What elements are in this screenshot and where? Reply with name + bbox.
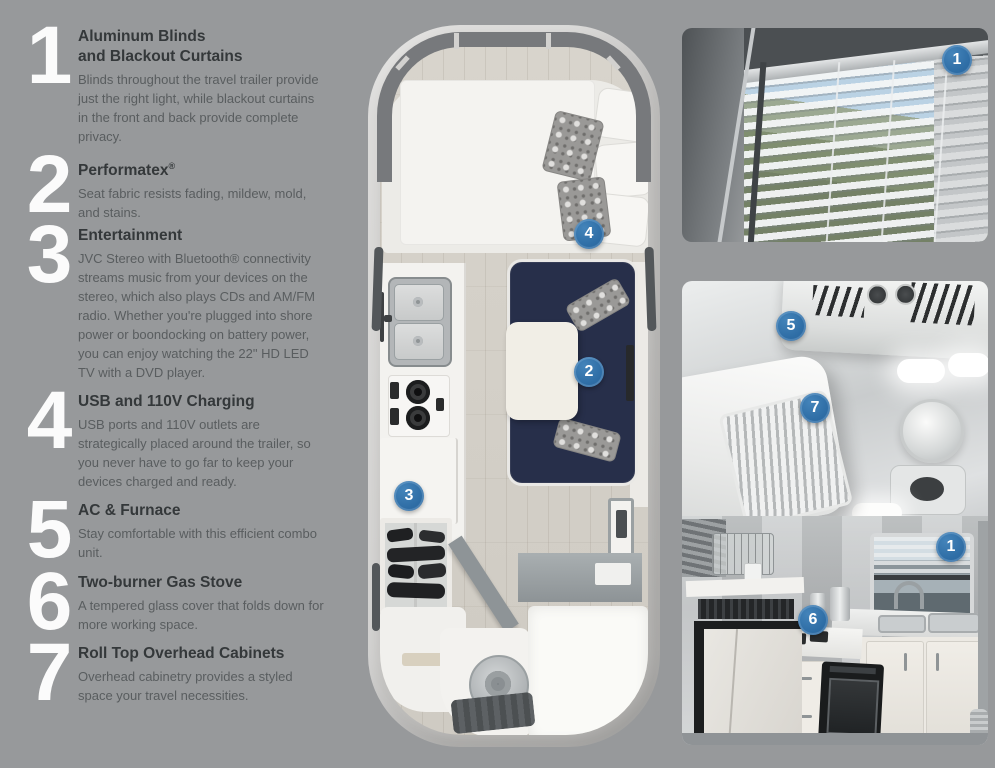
feature-description: Stay comfortable with this efficient com…	[78, 524, 326, 562]
feature-item-6: 6 Two-burner Gas Stove A tempered glass …	[20, 573, 324, 634]
feature-title: Entertainment	[78, 226, 324, 246]
feature-number: 3	[20, 222, 76, 288]
bath-counter-inset	[595, 563, 631, 585]
rolltop-cabinet	[682, 353, 851, 542]
entry-door-window	[616, 510, 627, 538]
brochure-page: 1 Aluminum Blinds and Blackout Curtains …	[0, 0, 995, 768]
stove-knob	[436, 398, 444, 411]
cabinet-handle	[904, 653, 907, 671]
ac-vent-knob	[866, 284, 888, 306]
speaker-cone	[910, 477, 944, 501]
burner-cap	[414, 414, 422, 422]
stove-grate	[390, 382, 399, 399]
callout-badge-window: 1	[936, 532, 966, 562]
feature-description: Seat fabric resists fading, mildew, mold…	[78, 184, 326, 222]
feature-description: Blinds throughout the travel trailer pro…	[78, 70, 326, 146]
feature-item-7: 7 Roll Top Overhead Cabinets Overhead ca…	[20, 644, 324, 705]
window-pane-gap	[454, 33, 459, 49]
feature-title: Roll Top Overhead Cabinets	[78, 644, 324, 664]
feature-item-4: 4 USB and 110V Charging USB ports and 11…	[20, 392, 324, 491]
feature-number: 6	[20, 569, 76, 635]
sink-drain	[413, 336, 423, 346]
floorplan-trailer-shell: 4 2 3	[368, 25, 660, 747]
ceiling-vent-fan	[900, 399, 964, 463]
ceiling-light	[948, 353, 988, 377]
shower-tub	[528, 606, 648, 735]
burner-cap	[414, 388, 422, 396]
feature-number: 5	[20, 497, 76, 563]
window-mullion	[874, 575, 970, 580]
floor-strip	[682, 733, 988, 745]
metal-canister	[830, 587, 850, 621]
faucet-handle	[384, 315, 392, 322]
sink-basin	[878, 615, 926, 633]
feature-description: USB ports and 110V outlets are strategic…	[78, 415, 326, 491]
rolltop-shutter	[718, 389, 853, 530]
callout-badge-rolltop: 7	[800, 393, 830, 423]
dinette-table	[506, 322, 578, 420]
feature-title: Aluminum Blinds and Blackout Curtains	[78, 27, 324, 67]
ac-unit	[780, 281, 988, 360]
refrigerator	[694, 621, 802, 745]
callout-badge-stove: 6	[798, 605, 828, 635]
cabinet-handle	[936, 653, 939, 671]
feature-description: A tempered glass cover that folds down f…	[78, 596, 326, 634]
sink-basin	[928, 613, 980, 633]
feature-title: Two-burner Gas Stove	[78, 573, 324, 593]
callout-badge-blinds: 1	[942, 45, 972, 75]
callout-badge-cabinet: 3	[394, 481, 424, 511]
feature-number: 4	[20, 388, 76, 454]
feature-number: 1	[20, 23, 76, 89]
feature-title: Performatex®	[78, 156, 324, 181]
window-pane-gap	[546, 33, 551, 49]
photo-aluminum-blinds: 1	[682, 28, 988, 242]
callout-badge-ac: 5	[776, 311, 806, 341]
hanging-clothes	[387, 564, 414, 580]
fridge-vent	[698, 599, 794, 619]
sink-faucet-arc	[894, 581, 924, 609]
feature-number: 7	[20, 640, 76, 706]
side-window	[372, 563, 380, 631]
callout-badge-charging: 4	[574, 219, 604, 249]
feature-title: USB and 110V Charging	[78, 392, 324, 412]
callout-badge-sofa: 2	[574, 357, 604, 387]
fridge-door-seam	[728, 629, 738, 745]
feature-item-5: 5 AC & Furnace Stay comfortable with thi…	[20, 501, 324, 562]
feature-title: AC & Furnace	[78, 501, 324, 521]
feature-item-1: 1 Aluminum Blinds and Blackout Curtains …	[20, 27, 324, 146]
side-window	[645, 247, 657, 331]
oven-glass-door	[826, 678, 879, 737]
toilet-bowl	[485, 671, 511, 697]
ac-vent-slats	[812, 285, 865, 318]
oven-control-bar	[830, 666, 876, 674]
wall-tv	[626, 345, 634, 401]
feature-item-3: 3 Entertainment JVC Stereo with Bluetoot…	[20, 226, 324, 382]
registered-mark: ®	[168, 161, 175, 171]
wire-storage-basket	[712, 533, 774, 575]
blinds-closed-section	[934, 56, 988, 242]
feature-description: JVC Stereo with Bluetooth® connectivity …	[78, 249, 326, 382]
photo-interior-kitchen: 5 7 6 1	[682, 281, 988, 745]
stove-grate	[390, 408, 399, 425]
kitchen-cabinet	[380, 438, 458, 524]
ceiling-light	[897, 359, 945, 383]
ac-vent-slats	[910, 282, 976, 325]
sink-drain	[413, 297, 423, 307]
feature-description: Overhead cabinetry provides a styled spa…	[78, 667, 326, 705]
hanging-clothes	[387, 582, 445, 599]
